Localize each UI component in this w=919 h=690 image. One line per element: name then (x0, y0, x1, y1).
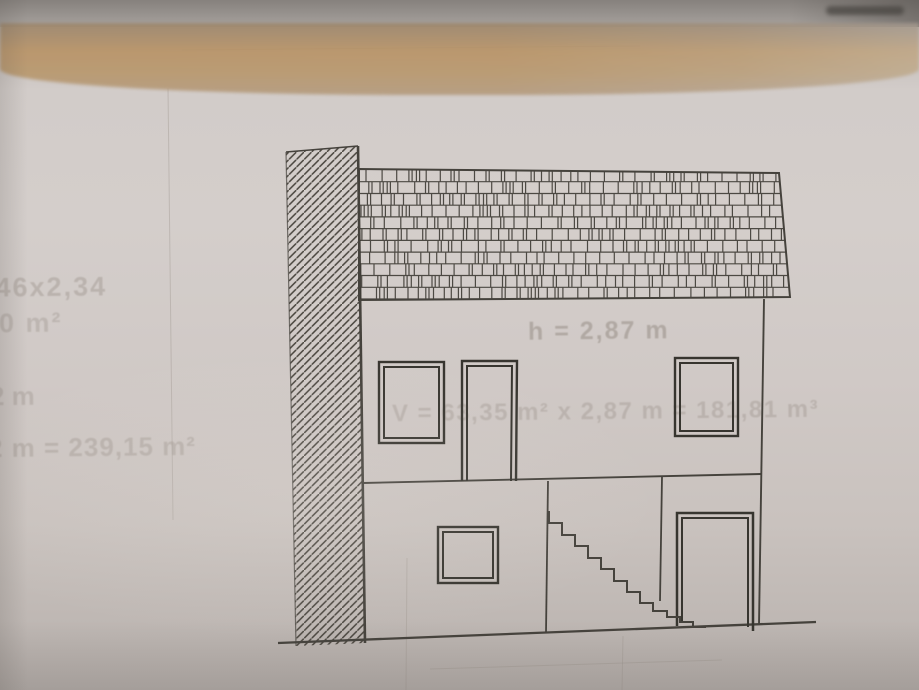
lower-left-window (438, 527, 498, 583)
upper-tall-door (462, 361, 517, 481)
roof-shingle-pattern (359, 170, 790, 299)
upper-left-window (379, 362, 444, 443)
stair-left-divider (546, 481, 548, 633)
upper-right-window (675, 358, 738, 436)
stair-right-divider (660, 477, 662, 601)
house-right-edge (759, 299, 764, 625)
entrance-door (677, 513, 753, 631)
floor-divider (363, 474, 761, 483)
house-elevation-drawing (0, 0, 919, 690)
page-edge-smudge (826, 6, 904, 15)
page-curl-highlight (0, 23, 919, 95)
photographed-workbook-page: ,46x2,34 90 m² 2 m 2 m = 239,15 m² h = 2… (0, 0, 919, 690)
hatched-wall (286, 146, 365, 646)
